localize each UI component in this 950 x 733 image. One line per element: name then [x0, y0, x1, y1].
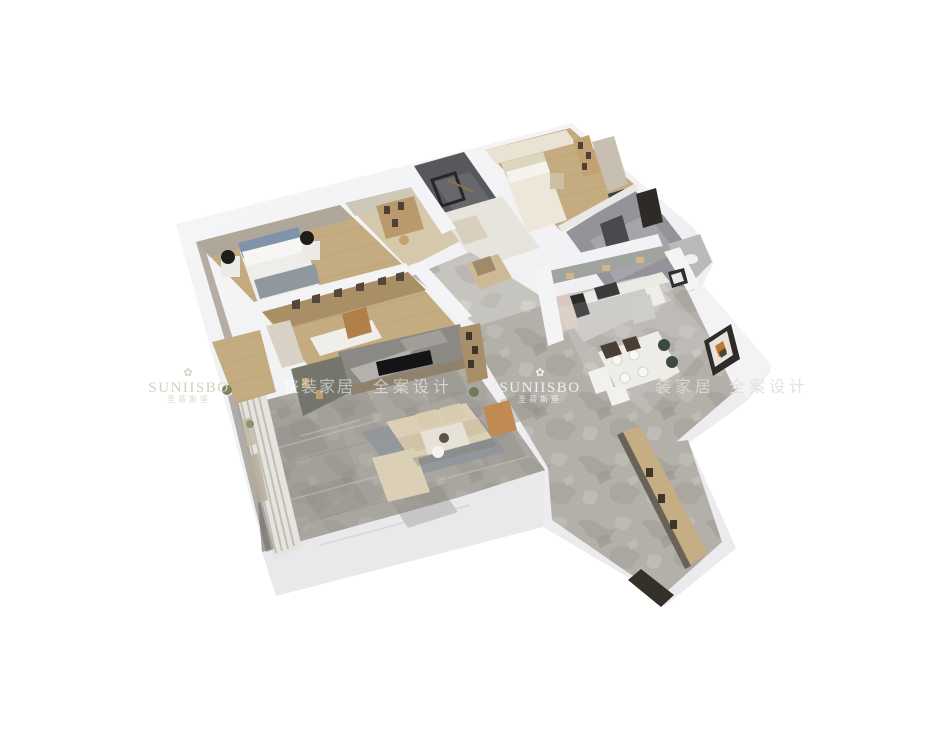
svg-text:圣蒂斯堡: 圣蒂斯堡 — [167, 394, 211, 404]
svg-text:装家居: 装家居 — [655, 378, 715, 396]
svg-text:✿: ✿ — [183, 367, 192, 379]
svg-text:全案设计: 全案设计 — [729, 378, 809, 396]
svg-text:圣蒂斯堡: 圣蒂斯堡 — [518, 394, 562, 404]
svg-text:SUNIISBO: SUNIISBO — [499, 380, 580, 396]
svg-text:SUNIISBO: SUNIISBO — [148, 380, 229, 396]
svg-text:整装家居: 整装家居 — [283, 378, 355, 396]
svg-text:全案设计: 全案设计 — [373, 378, 453, 396]
svg-text:✿: ✿ — [535, 367, 544, 379]
